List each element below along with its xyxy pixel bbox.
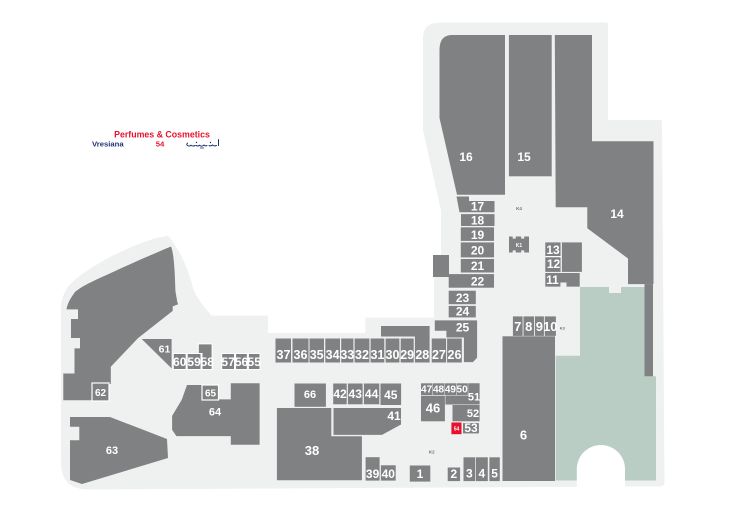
svg-text:60: 60 — [173, 355, 187, 369]
svg-text:59: 59 — [187, 355, 201, 369]
svg-text:66: 66 — [304, 389, 316, 401]
svg-text:26: 26 — [448, 348, 462, 362]
svg-text:37: 37 — [277, 348, 291, 362]
svg-text:Perfumes & Cosmetics: Perfumes & Cosmetics — [114, 130, 210, 140]
svg-text:6: 6 — [520, 428, 527, 443]
svg-text:Vresiana: Vresiana — [92, 139, 124, 148]
svg-text:20: 20 — [471, 243, 485, 257]
svg-text:39: 39 — [366, 467, 380, 481]
svg-text:55: 55 — [248, 355, 262, 369]
svg-text:48: 48 — [433, 385, 445, 396]
svg-text:25: 25 — [456, 321, 470, 335]
svg-text:44: 44 — [365, 387, 379, 401]
svg-text:K4: K4 — [516, 206, 522, 211]
svg-text:33: 33 — [340, 348, 354, 362]
svg-text:31: 31 — [370, 348, 384, 362]
svg-text:65: 65 — [205, 389, 217, 400]
svg-text:63: 63 — [106, 445, 118, 457]
svg-text:45: 45 — [384, 388, 398, 402]
svg-text:64: 64 — [209, 407, 222, 419]
svg-text:13: 13 — [546, 243, 560, 257]
svg-text:56: 56 — [235, 355, 249, 369]
svg-text:32: 32 — [355, 348, 369, 362]
svg-text:35: 35 — [310, 348, 324, 362]
svg-text:61: 61 — [159, 344, 171, 356]
svg-text:7: 7 — [514, 319, 521, 334]
svg-text:19: 19 — [471, 228, 485, 242]
svg-text:36: 36 — [294, 348, 308, 362]
svg-text:62: 62 — [95, 388, 107, 399]
svg-text:11: 11 — [546, 273, 559, 287]
svg-text:38: 38 — [305, 443, 319, 458]
svg-text:3: 3 — [466, 467, 473, 481]
svg-text:54: 54 — [454, 426, 460, 432]
svg-text:40: 40 — [382, 467, 396, 481]
svg-text:58: 58 — [201, 355, 215, 369]
svg-text:47: 47 — [421, 385, 433, 396]
svg-text:30: 30 — [386, 348, 400, 362]
svg-text:54: 54 — [156, 139, 165, 148]
svg-text:29: 29 — [400, 348, 414, 362]
svg-text:10: 10 — [543, 319, 557, 334]
svg-text:18: 18 — [471, 214, 485, 228]
svg-text:16: 16 — [459, 150, 473, 164]
svg-text:50: 50 — [457, 385, 469, 396]
svg-text:15: 15 — [517, 150, 531, 164]
svg-text:21: 21 — [471, 259, 485, 273]
svg-text:43: 43 — [349, 387, 363, 401]
svg-text:41: 41 — [387, 409, 401, 423]
svg-text:2: 2 — [451, 467, 458, 481]
svg-text:1: 1 — [417, 467, 424, 481]
svg-text:14: 14 — [610, 207, 624, 221]
svg-text:53: 53 — [464, 421, 478, 435]
svg-text:46: 46 — [426, 401, 440, 416]
svg-text:24: 24 — [456, 305, 470, 319]
svg-text:42: 42 — [333, 387, 347, 401]
svg-text:K2: K2 — [429, 450, 435, 455]
svg-text:8: 8 — [525, 319, 532, 334]
svg-text:57: 57 — [221, 355, 235, 369]
svg-text:22: 22 — [471, 275, 485, 289]
svg-text:52: 52 — [467, 408, 479, 420]
svg-text:28: 28 — [415, 348, 429, 362]
svg-text:4: 4 — [479, 467, 486, 481]
svg-text:17: 17 — [471, 200, 485, 214]
svg-text:9: 9 — [536, 319, 543, 334]
svg-text:12: 12 — [547, 257, 561, 271]
svg-text:51: 51 — [468, 392, 480, 404]
svg-text:5: 5 — [491, 467, 498, 481]
svg-text:27: 27 — [432, 348, 446, 362]
svg-text:23: 23 — [456, 291, 470, 305]
svg-text:K3: K3 — [560, 326, 566, 331]
svg-text:49: 49 — [445, 385, 457, 396]
svg-text:34: 34 — [326, 348, 340, 362]
svg-text:K1: K1 — [516, 243, 523, 249]
